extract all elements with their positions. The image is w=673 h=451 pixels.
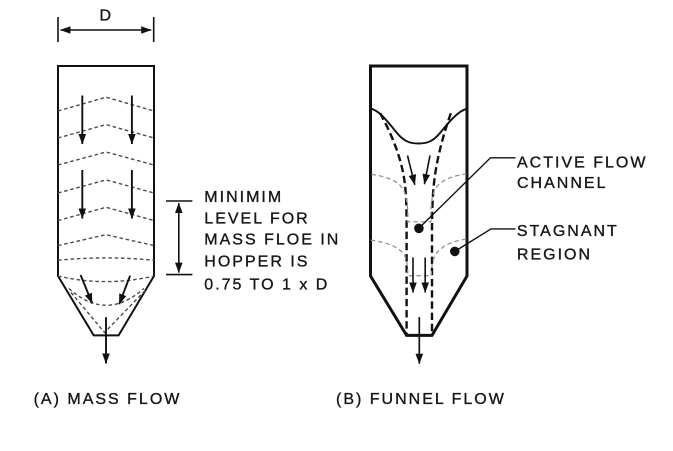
- svg-text:0.75 TO 1 x D: 0.75 TO 1 x D: [204, 276, 329, 293]
- svg-text:(B) FUNNEL FLOW: (B) FUNNEL FLOW: [336, 391, 506, 408]
- svg-text:ACTIVE FLOW: ACTIVE FLOW: [517, 154, 647, 171]
- svg-text:CHANNEL: CHANNEL: [517, 175, 607, 192]
- svg-text:D: D: [100, 7, 114, 24]
- svg-text:MINIMIM: MINIMIM: [204, 189, 283, 206]
- svg-text:STAGNANT: STAGNANT: [517, 223, 619, 240]
- svg-text:MASS FLOE IN: MASS FLOE IN: [204, 232, 340, 249]
- svg-text:LEVEL FOR: LEVEL FOR: [204, 210, 309, 227]
- svg-text:REGION: REGION: [517, 246, 592, 263]
- svg-text:(A) MASS FLOW: (A) MASS FLOW: [34, 391, 182, 408]
- svg-text:HOPPER IS: HOPPER IS: [204, 254, 309, 271]
